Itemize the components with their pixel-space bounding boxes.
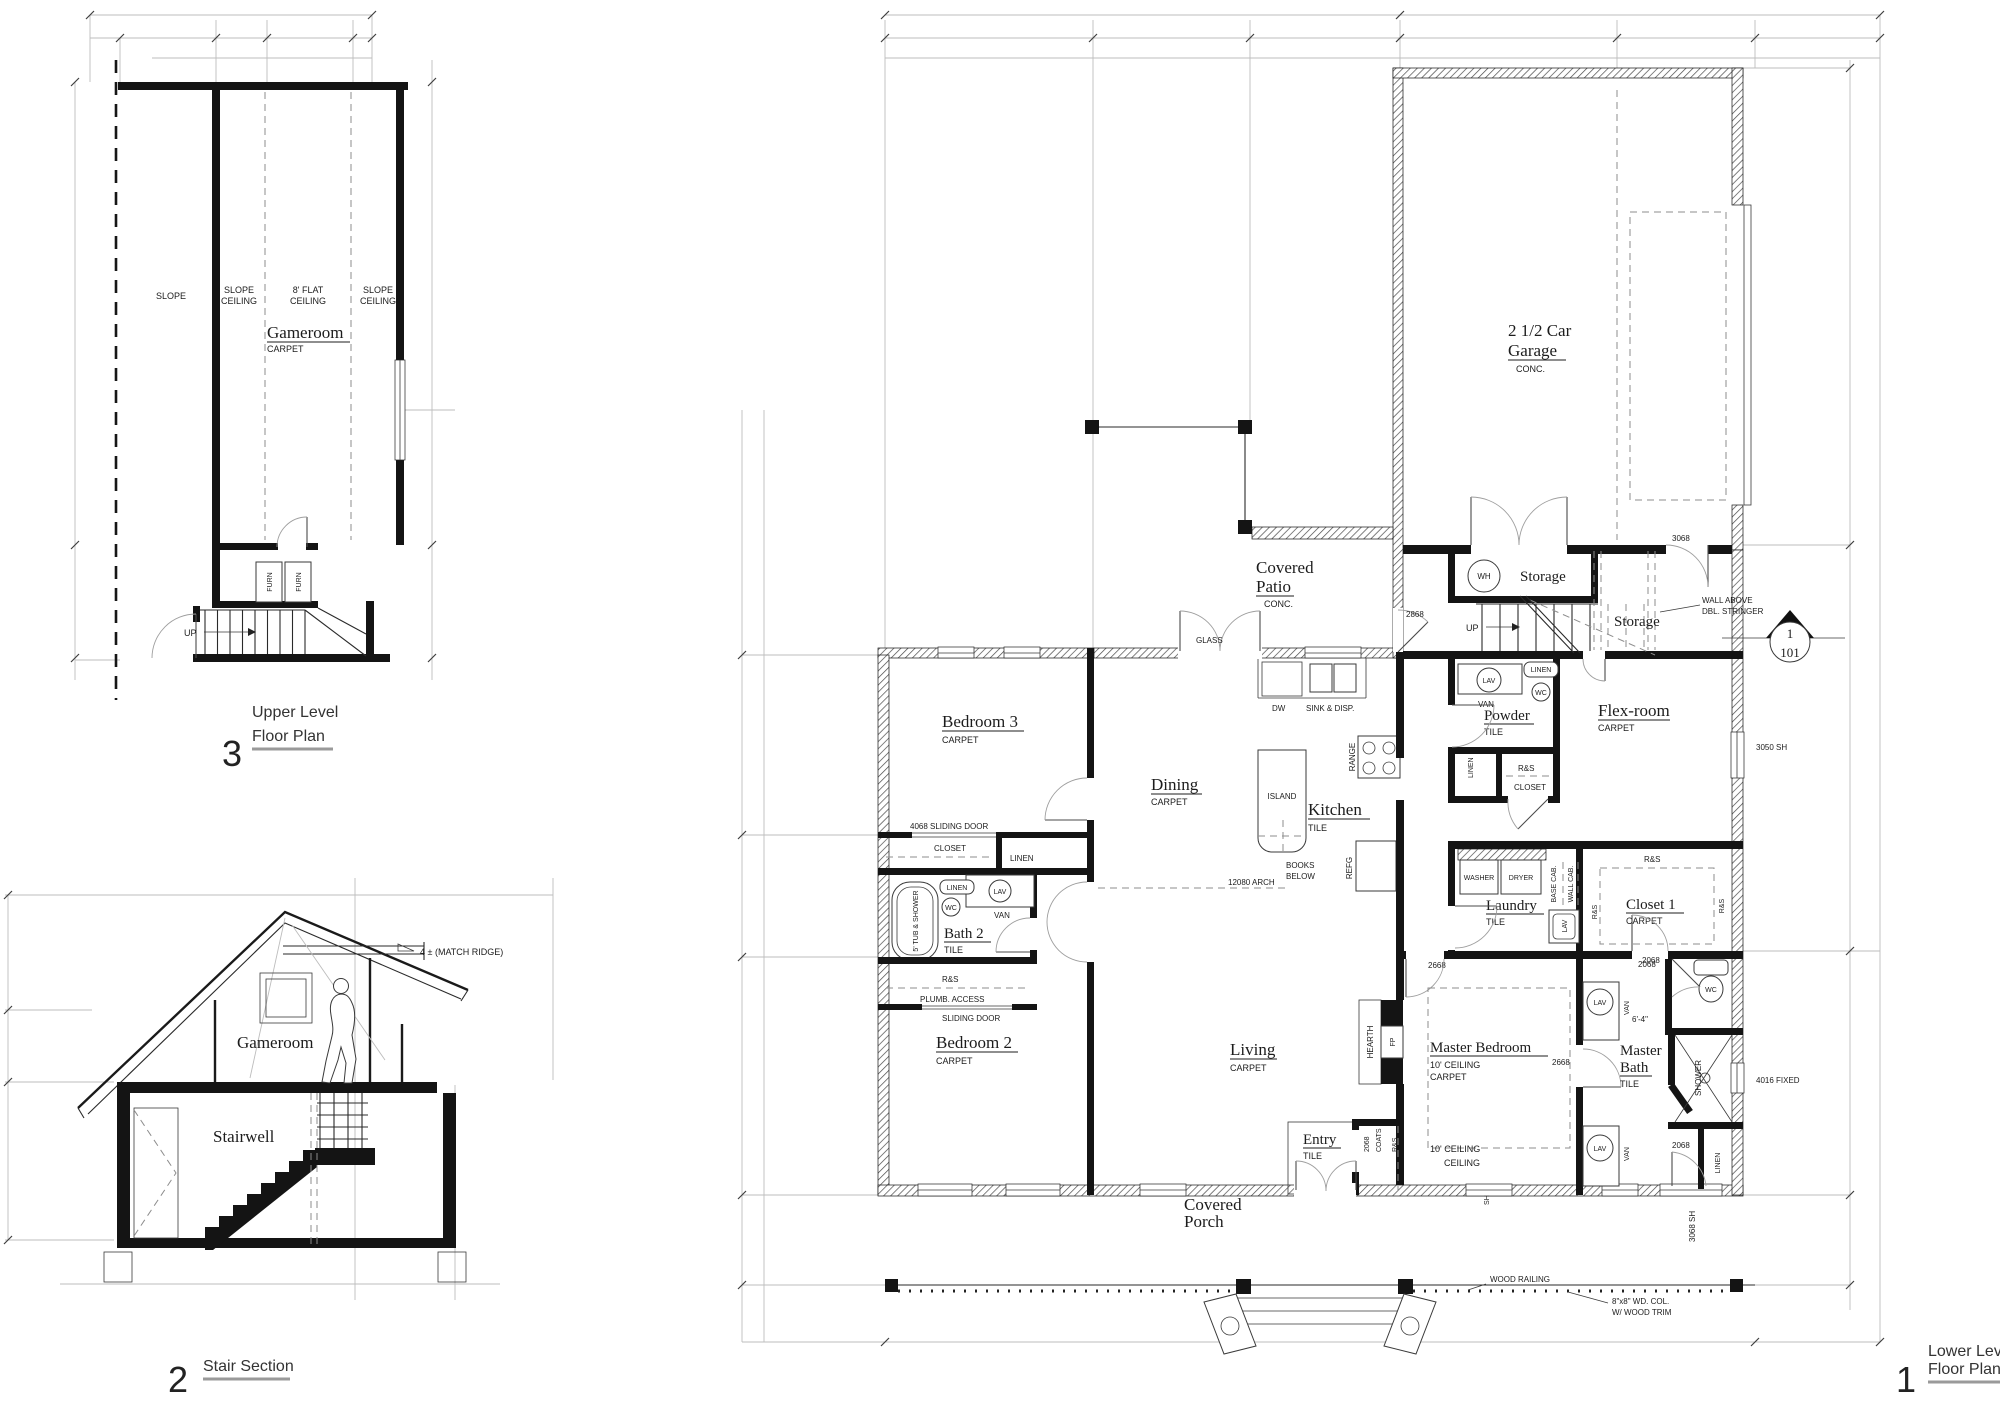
porch-post (1236, 1279, 1251, 1294)
covered-patio: Covered Patio CONC. (1085, 420, 1393, 609)
flex-room-floor: CARPET (1598, 723, 1635, 733)
window-tag-3068sh: 3068 SH (1688, 1211, 1697, 1242)
foundation-pier-left (104, 1252, 132, 1282)
master-bedroom-ceiling: 10' CEILING (1430, 1060, 1480, 1070)
furnace-closet: FURN FURN (256, 562, 311, 602)
labels: 4 ± (MATCH RIDGE) Gameroom Stairwell (213, 944, 503, 1146)
master-bath-label-2: Bath (1620, 1060, 1649, 1076)
door-tag-2868: 2868 (1406, 610, 1424, 619)
door-elevation (134, 1108, 178, 1238)
sh-window-tag: SH (1484, 1195, 1491, 1205)
slope-ceiling-right-2: CEILING (360, 296, 396, 306)
patio-post (1238, 520, 1252, 534)
slope-ceiling-right-1: SLOPE (363, 285, 393, 295)
match-ridge-note: 4 ± (MATCH RIDGE) (420, 947, 503, 957)
lav-label: LAV (994, 889, 1007, 896)
lower-plan-title-2: Floor Plan (1928, 1361, 2000, 1378)
island-label: ISLAND (1268, 792, 1297, 801)
upper-plan-title-2: Floor Plan (252, 728, 325, 745)
walls (116, 60, 408, 700)
lower-level-floor-plan: 2 1/2 Car Garage CONC. Covered Patio CON… (738, 11, 2000, 1400)
glass-label: GLASS (1196, 636, 1223, 645)
porch-post (1398, 1279, 1413, 1294)
flat-ceiling-2: CEILING (290, 296, 326, 306)
bedroom2-floor: CARPET (936, 1056, 973, 1066)
slope-ceiling-left-1: SLOPE (224, 285, 254, 295)
sink-basin-2 (1334, 664, 1356, 692)
hall-linen-label: LINEN (1010, 854, 1034, 863)
up-label-lower: UP (1466, 623, 1479, 633)
wc-label: WC (945, 905, 957, 912)
van-label: VAN (1624, 1001, 1631, 1015)
bath2: LAV VAN LINEN WC 5' TUB & SHOWER Bath 2 … (892, 868, 1037, 962)
closet1-label: Closet 1 (1626, 897, 1676, 913)
entry-floor: TILE (1303, 1151, 1322, 1161)
base-cab-label: BASE CAB. (1551, 865, 1558, 902)
linen-label: LINEN (1531, 667, 1552, 674)
marker-sheet: 101 (1780, 645, 1800, 660)
section-title: Stair Section (203, 1358, 294, 1375)
ceiling-note-2: CEILING (1444, 1158, 1480, 1168)
section-number: 2 (168, 1359, 188, 1400)
covered-porch: Covered Porch WOOD RAILING 8"x8" WD. COL… (885, 1195, 1755, 1354)
hearth-label: HEARTH (1366, 1025, 1375, 1058)
window-tag-4016: 4016 FIXED (1756, 1076, 1800, 1085)
arch-label: 12080 ARCH (1228, 878, 1275, 887)
porch-post (885, 1279, 898, 1292)
bedroom2: R&S PLUMB. ACCESS SLIDING DOOR Bedroom 2… (878, 957, 1037, 1066)
linen-label: LINEN (947, 885, 968, 892)
stair-section-drawing: 4 ± (MATCH RIDGE) Gameroom Stairwell 2 S… (4, 878, 553, 1400)
living-floor: CARPET (1230, 1063, 1267, 1073)
slope-ceiling-left-2: CEILING (221, 296, 257, 306)
title-block-section: 2 Stair Section (168, 1358, 294, 1400)
plumb-access-label: PLUMB. ACCESS (920, 995, 984, 1004)
washer-label: WASHER (1464, 875, 1494, 882)
coats-label: COATS (1376, 1128, 1383, 1152)
garage-label-2: Garage (1508, 341, 1557, 360)
laundry-closet1: WASHER DRYER BASE CAB. WALL CAB. LAV Lau… (1403, 841, 1743, 997)
master-suite: Master Bedroom 10' CEILING CARPET 10' CE… (1428, 951, 1743, 1195)
ceiling-note-1: 10' CEILING (1430, 1144, 1480, 1154)
mbath-door-tag: 2668 (1552, 1058, 1570, 1067)
furnace-2-label: FURN (296, 572, 303, 591)
title-block-lower: 1 Lower Level Floor Plan (1896, 1343, 2000, 1400)
living-label: Living (1230, 1040, 1276, 1059)
fp-label: FP (1390, 1037, 1397, 1046)
wood-railing-note: WOOD RAILING (1490, 1275, 1550, 1284)
gameroom-floor: CARPET (267, 344, 304, 354)
dryer-label: DRYER (1509, 875, 1533, 882)
window (395, 360, 405, 460)
dw-label: DW (1272, 704, 1286, 713)
porch-label-2: Porch (1184, 1212, 1224, 1231)
patio-label-1: Covered (1256, 558, 1314, 577)
lav-label: LAV (1594, 1146, 1607, 1153)
stairwell-label: Stairwell (213, 1127, 275, 1146)
patio-floor: CONC. (1264, 599, 1293, 609)
exterior-walls (878, 68, 1751, 1196)
sliding-door-tag-4068: 4068 SLIDING DOOR (910, 822, 988, 831)
up-arrow-lower (1512, 623, 1520, 631)
upper-plan-number: 3 (222, 733, 242, 774)
porch-steps (1232, 1298, 1408, 1324)
porch-post (1730, 1279, 1743, 1292)
entry-label: Entry (1303, 1132, 1337, 1148)
sink-basin-1 (1310, 664, 1332, 692)
wall-above-note-2: DBL. STRINGER (1702, 607, 1764, 616)
door-tag-3068: 3068 (1672, 534, 1690, 543)
garage: 2 1/2 Car Garage CONC. (1508, 90, 1726, 540)
master-bedroom-floor: CARPET (1430, 1072, 1467, 1082)
master-bath-label-1: Master (1620, 1043, 1662, 1059)
bedroom3-floor: CARPET (942, 735, 979, 745)
wall-cab-label: WALL CAB. (1568, 866, 1575, 903)
coats-door-tag: 2068 (1364, 1136, 1371, 1152)
overhead-door-track (1617, 90, 1726, 540)
mbath-linen-label: LINEN (1715, 1153, 1722, 1174)
foundation-pier-right (438, 1252, 466, 1282)
closet1-rs-left: R&S (1592, 904, 1599, 919)
lav-label: LAV (1483, 678, 1496, 685)
bedroom3-label: Bedroom 3 (942, 712, 1018, 731)
upper-level-floor-plan: FURN FURN SLOPE SLOPE CEILING 8' FLAT CE… (71, 11, 455, 774)
dining-floor: CARPET (1151, 797, 1188, 807)
bed2-closet-rs: R&S (942, 975, 958, 984)
powder-flex: LAV VAN LINEN WC Powder TILE LINEN R&S C… (1448, 651, 1670, 829)
linen-closet-label: LINEN (1468, 757, 1475, 778)
wc-label: WC (1705, 987, 1717, 994)
up-label: UP (184, 628, 197, 638)
island-icon (1258, 750, 1306, 852)
bath2-label: Bath 2 (944, 926, 984, 942)
bedroom2-label: Bedroom 2 (936, 1033, 1012, 1052)
laundry-lav-label: LAV (1562, 919, 1569, 932)
dim-6-4: 6'-4" (1632, 1015, 1648, 1024)
flex-room-label: Flex-room (1598, 701, 1670, 720)
closet-word: CLOSET (1514, 783, 1546, 792)
water-heater-label: WH (1477, 572, 1491, 581)
wc-label: WC (1535, 690, 1547, 697)
person-figure (322, 979, 356, 1084)
lower-plan-number: 1 (1896, 1359, 1916, 1400)
tub-label: 5' TUB & SHOWER (913, 890, 920, 951)
window-tag-3050: 3050 SH (1756, 743, 1787, 752)
refg-label: REFG (1345, 857, 1354, 879)
title-block-upper: 3 Upper Level Floor Plan (222, 704, 338, 774)
range-label: RANGE (1348, 743, 1357, 771)
slope-label: SLOPE (156, 291, 186, 301)
van-label: VAN (994, 911, 1010, 920)
flat-ceiling-1: 8' FLAT (293, 285, 324, 295)
stairs-up (200, 608, 366, 656)
stairs-section (205, 1093, 375, 1250)
kitchen-floor: TILE (1308, 823, 1327, 833)
sliding-door-label: SLIDING DOOR (942, 1014, 1000, 1023)
books-below-2: BELOW (1286, 872, 1315, 881)
drawing-sheet: FURN FURN SLOPE SLOPE CEILING 8' FLAT CE… (0, 0, 2000, 1403)
bath2-floor: TILE (944, 945, 963, 955)
patio-label-2: Patio (1256, 577, 1291, 596)
lower-plan-title-1: Lower Level (1928, 1343, 2000, 1360)
wall-above-note-1: WALL ABOVE (1702, 596, 1753, 605)
wc-door-tag: 2068 (1642, 956, 1660, 965)
shower-label: SHOWER (1694, 1060, 1703, 1096)
dishwasher-icon (1262, 662, 1302, 696)
gameroom-label: Gameroom (267, 323, 343, 342)
storage-2-label: Storage (1614, 614, 1660, 630)
closet-rs: R&S (1518, 764, 1534, 773)
sink-label: SINK & DISP. (1306, 704, 1354, 713)
master-bath-floor: TILE (1620, 1079, 1639, 1089)
storage-1-label: Storage (1520, 569, 1566, 585)
upper-plan-title-1: Upper Level (252, 704, 338, 721)
dining-label: Dining (1151, 775, 1199, 794)
marker-number: 1 (1787, 626, 1794, 641)
garage-door-panel (1744, 205, 1751, 505)
linen-door-tag: 2068 (1672, 1141, 1690, 1150)
slope-symbol (398, 944, 414, 951)
master-bedroom-label: Master Bedroom (1430, 1040, 1532, 1056)
refrigerator-icon (1356, 841, 1396, 891)
lav-label: LAV (1594, 1000, 1607, 1007)
ceiling-break-lines (265, 92, 351, 540)
furnace-1-label: FURN (267, 572, 274, 591)
closet1-rs-top: R&S (1644, 855, 1660, 864)
toilet-tank (1694, 960, 1728, 975)
books-below-1: BOOKS (1286, 861, 1314, 870)
column-note-2: W/ WOOD TRIM (1612, 1308, 1672, 1317)
floor-plan-sheet: FURN FURN SLOPE SLOPE CEILING 8' FLAT CE… (0, 0, 2000, 1403)
van-label: VAN (1624, 1147, 1631, 1161)
bed3-closet-label: CLOSET (934, 844, 966, 853)
patio-post (1085, 420, 1099, 434)
section-gameroom-label: Gameroom (237, 1033, 313, 1052)
garage-label-1: 2 1/2 Car (1508, 321, 1572, 340)
column-note-1: 8"x8" WD. COL. (1612, 1297, 1669, 1306)
garage-floor: CONC. (1516, 364, 1545, 374)
storage-stair-strip: 3068 WH Storage UP 2868 WALL ABOVE DBL. … (1393, 497, 1764, 659)
closet1-rs-right: R&S (1719, 898, 1726, 913)
kitchen-label: Kitchen (1308, 800, 1362, 819)
patio-post (1238, 420, 1252, 434)
